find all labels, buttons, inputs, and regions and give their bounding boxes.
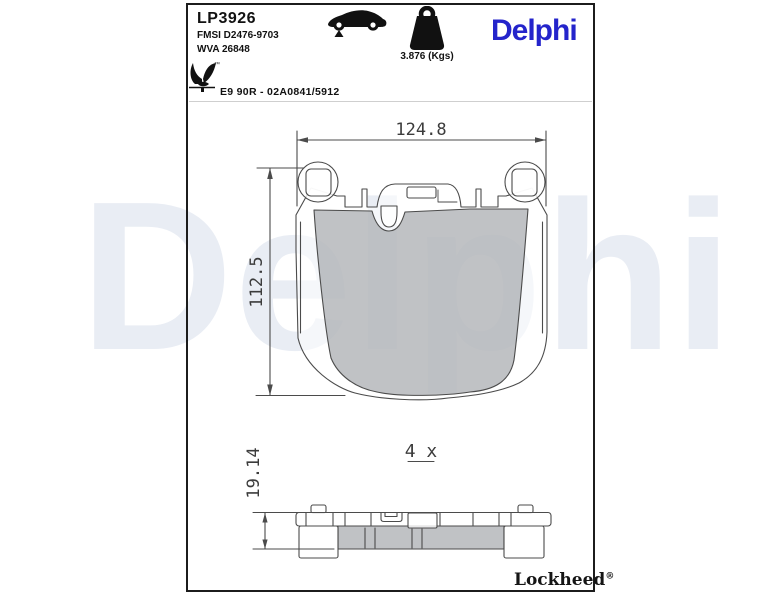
wva-code: WVA 26848 — [197, 44, 250, 55]
fmsi-code: FMSI D2476-9703 — [197, 30, 279, 41]
arrow-down — [267, 385, 273, 396]
lockheed-text: Lockheed — [514, 570, 605, 590]
header-separator — [189, 101, 592, 102]
arrow-up — [262, 513, 267, 523]
thickness-label: 19.14 — [244, 447, 264, 498]
weight-value: 3.876 (Kgs) — [392, 51, 462, 62]
arrow-down — [262, 540, 267, 550]
arrow-left — [297, 137, 308, 143]
lockheed-logo: Lockheed® — [514, 570, 614, 590]
eagle-trademark: ™ — [214, 62, 220, 68]
datasheet-page: Delphi LP3926 FMSI D2476-9703 WVA 26848 … — [0, 0, 782, 600]
quantity-label: 4 x — [405, 441, 438, 462]
car-icon — [326, 7, 388, 39]
technical-drawing: 124.8 112.5 19.14 4 x — [0, 0, 782, 600]
homologation-code: E9 90R - 02A0841/5912 — [220, 86, 340, 98]
side-view — [296, 505, 551, 558]
part-number: LP3926 — [197, 10, 256, 28]
width-label: 124.8 — [395, 120, 446, 140]
weight-icon — [403, 6, 451, 52]
front-view — [296, 162, 547, 400]
delphi-logo: Delphi — [491, 14, 577, 48]
height-label: 112.5 — [247, 256, 267, 307]
registered-mark: ® — [605, 571, 614, 581]
arrow-up — [267, 168, 273, 179]
arrow-right — [535, 137, 546, 143]
